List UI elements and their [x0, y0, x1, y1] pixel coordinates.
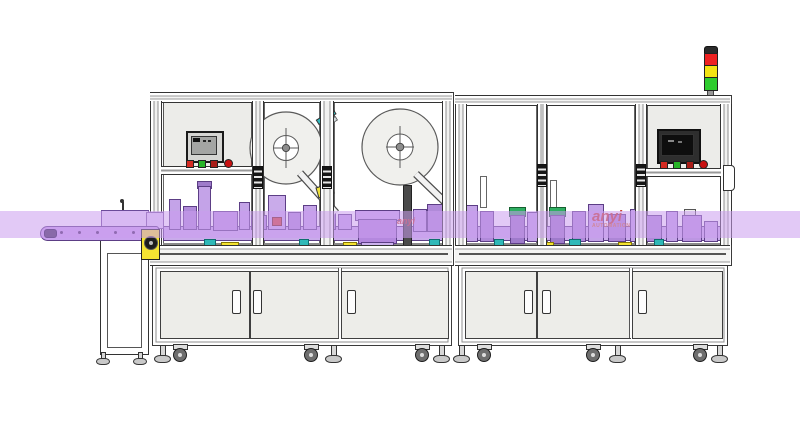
- mid-beam-right: [645, 168, 721, 177]
- door-hinge: [253, 166, 263, 189]
- door-pull-handle: [723, 165, 735, 191]
- stack-light-green: [704, 77, 718, 91]
- door-handle[interactable]: [542, 290, 551, 314]
- cabinet-door[interactable]: [341, 271, 449, 339]
- enclosure-frame-left: [150, 92, 454, 266]
- door-handle[interactable]: [638, 290, 647, 314]
- cabinet-door[interactable]: [250, 271, 339, 339]
- hmi-estop-button[interactable]: [699, 160, 708, 169]
- hmi-button-red[interactable]: [210, 160, 218, 168]
- conveyor-sensor-head: [120, 199, 124, 203]
- belt-dot: [96, 231, 99, 234]
- cabinet-door[interactable]: [537, 271, 631, 339]
- caster-wheel: [691, 344, 709, 364]
- belt-dot: [78, 231, 81, 234]
- watermark-brand: anyi: [592, 210, 630, 223]
- pedestal-foot: [96, 352, 110, 365]
- door-handle[interactable]: [524, 290, 533, 314]
- hmi-button-green[interactable]: [673, 161, 681, 169]
- leveling-foot: [453, 345, 471, 363]
- caster-wheel: [171, 344, 189, 364]
- belt-dot: [114, 231, 117, 234]
- caster-wheel: [302, 344, 320, 364]
- lower-beam-right: [455, 245, 730, 266]
- door-handle[interactable]: [347, 290, 356, 314]
- machine-line-drawing: anyi AUTOMATION anyi: [0, 0, 800, 438]
- lower-beam-line: [459, 253, 726, 255]
- conveyor-sensor-mast: [122, 202, 124, 210]
- caster-wheel: [584, 344, 602, 364]
- mid-beam-left: [161, 166, 252, 175]
- pedestal-foot: [133, 352, 147, 365]
- lower-beam-line: [154, 253, 448, 255]
- corner-post: [455, 104, 467, 245]
- hmi-button-red[interactable]: [686, 161, 694, 169]
- leveling-foot: [154, 345, 172, 363]
- hmi-screen-glyph: [678, 141, 682, 143]
- door-hinge: [537, 164, 547, 187]
- hmi-screen-glyph: [668, 140, 674, 142]
- conveyor-pedestal-panel: [107, 253, 142, 348]
- caster-wheel: [413, 344, 431, 364]
- hmi-button-red[interactable]: [186, 160, 194, 168]
- hmi-estop-button[interactable]: [224, 159, 233, 168]
- hmi-button-green[interactable]: [198, 160, 206, 168]
- door-handle[interactable]: [253, 290, 262, 314]
- leveling-foot: [325, 345, 343, 363]
- hmi-screen-glyph: [208, 140, 211, 142]
- hmi-screen-glyph: [203, 140, 206, 142]
- belt-dot: [132, 231, 135, 234]
- watermark: anyi AUTOMATION: [592, 210, 630, 229]
- door-handle[interactable]: [232, 290, 241, 314]
- gear-hub: [149, 241, 153, 245]
- belt-dot: [60, 231, 63, 234]
- watermark-fragment: anyi: [397, 217, 415, 226]
- conveyor-end-roller: [44, 229, 57, 238]
- leveling-foot: [711, 345, 729, 363]
- caster-wheel: [475, 344, 493, 364]
- corner-post: [442, 101, 454, 245]
- door-hinge: [322, 166, 332, 189]
- leveling-foot: [609, 345, 627, 363]
- watermark-caption: AUTOMATION: [592, 223, 630, 229]
- hmi-screen-right: [661, 134, 694, 156]
- leveling-foot: [433, 345, 451, 363]
- hmi-screen-glyph: [193, 138, 200, 142]
- enclosure-frame-right: [455, 95, 732, 266]
- hmi-button-red[interactable]: [660, 161, 668, 169]
- top-beam-right: [455, 95, 730, 106]
- door-hinge: [636, 164, 646, 187]
- top-beam-left: [150, 92, 452, 103]
- lower-beam-left: [150, 245, 452, 266]
